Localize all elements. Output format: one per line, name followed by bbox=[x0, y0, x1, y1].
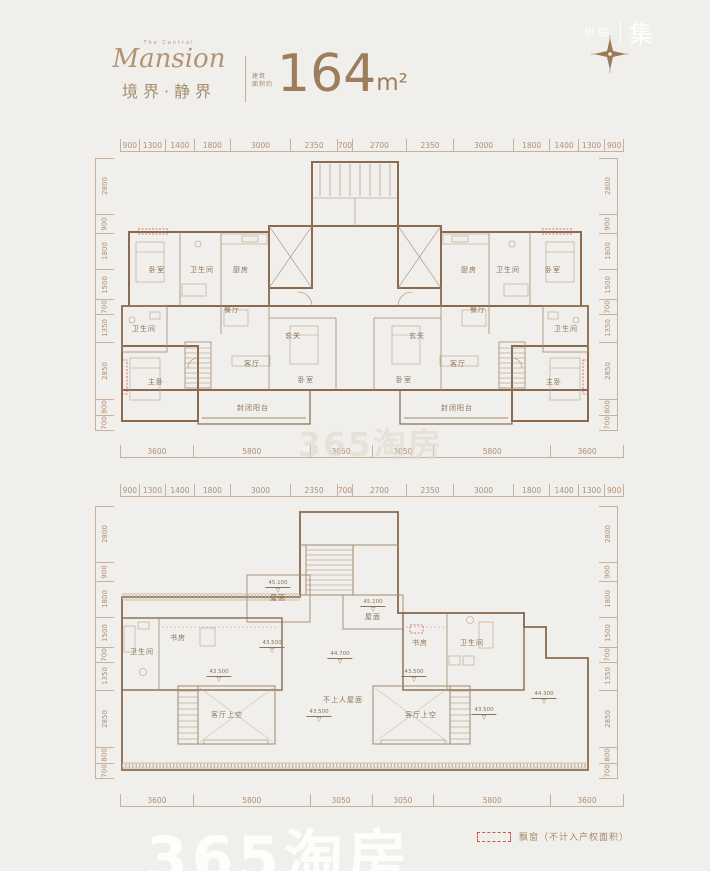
core-and-roofs bbox=[247, 545, 403, 629]
dim-segment: 5800 bbox=[434, 445, 551, 457]
upper-plan-top-dimensions: 9001300140018003000235070027002350300018… bbox=[120, 139, 624, 152]
lower-plan-left-dimensions: 28009001800150070013502850800700 bbox=[95, 506, 114, 779]
dim-segment: 900 bbox=[120, 484, 140, 496]
void-stair-icon bbox=[178, 691, 470, 739]
dim-segment: 700 bbox=[96, 763, 114, 778]
lower-plan-top-dimensions: 9001300140018003000235070027002350300018… bbox=[120, 484, 624, 497]
dim-segment: 2350 bbox=[291, 139, 338, 151]
dim-segment: 3600 bbox=[120, 445, 194, 457]
dim-segment: 1800 bbox=[96, 233, 114, 269]
dim-segment: 2850 bbox=[96, 342, 114, 399]
door-arcs bbox=[188, 292, 522, 368]
dim-segment: 3600 bbox=[551, 445, 624, 457]
dim-segment: 1500 bbox=[96, 269, 114, 299]
dashed-swatch-icon bbox=[477, 832, 511, 842]
dim-segment: 5800 bbox=[194, 445, 311, 457]
wing-partitions bbox=[159, 613, 447, 690]
dim-segment: 1800 bbox=[514, 139, 550, 151]
dim-segment: 800 bbox=[96, 747, 114, 764]
dim-segment: 900 bbox=[96, 214, 114, 233]
brand-right: 集 bbox=[629, 14, 653, 49]
dim-segment: 900 bbox=[96, 562, 114, 581]
area-unit: m² bbox=[376, 68, 408, 98]
partitions bbox=[122, 232, 588, 390]
outline-walls bbox=[122, 512, 588, 770]
dim-segment: 700 bbox=[338, 484, 353, 496]
dim-segment: 1350 bbox=[96, 662, 114, 690]
upper-plan-bottom-dimensions: 360058003050305058003600 bbox=[120, 445, 624, 458]
dim-segment: 3600 bbox=[120, 794, 194, 806]
bay-window-marks bbox=[410, 625, 423, 633]
elevator-icon bbox=[269, 226, 441, 288]
dim-segment: 1400 bbox=[550, 484, 579, 496]
legend-label: 飘窗（不计入产权面积） bbox=[519, 830, 629, 843]
lower-floor-plan: 屋面屋面卫生间书房书房卫生间客厅上空客厅上空不上人屋面 45.100▽45.10… bbox=[120, 506, 624, 782]
dim-segment: 3000 bbox=[454, 484, 514, 496]
enclosed-balconies bbox=[198, 390, 512, 424]
stair-icon bbox=[185, 164, 525, 383]
dim-segment: 2700 bbox=[353, 484, 407, 496]
dim-segment: 2350 bbox=[407, 484, 454, 496]
dim-segment: 800 bbox=[96, 399, 114, 416]
dim-segment: 1400 bbox=[166, 139, 195, 151]
dim-segment: 2800 bbox=[96, 158, 114, 214]
bay-window-legend: 飘窗（不计入产权面积） bbox=[477, 830, 629, 843]
logo-script-name: Mansion bbox=[93, 46, 245, 73]
upper-plan-left-dimensions: 28009001800150070013502850800700 bbox=[95, 158, 114, 431]
wing-walls bbox=[122, 613, 524, 690]
dim-segment: 1800 bbox=[195, 139, 231, 151]
dim-segment: 1350 bbox=[96, 314, 114, 342]
dim-segment: 900 bbox=[120, 139, 140, 151]
logo-chinese-name: 境界·静界 bbox=[93, 78, 245, 102]
dim-segment: 3050 bbox=[373, 445, 435, 457]
area-value: 164 bbox=[277, 50, 376, 98]
dim-segment: 3000 bbox=[231, 139, 291, 151]
dim-segment: 1400 bbox=[550, 139, 579, 151]
dim-segment: 3000 bbox=[231, 484, 291, 496]
dim-segment: 3050 bbox=[311, 794, 373, 806]
dim-segment: 1300 bbox=[140, 484, 167, 496]
lower-floor-plan-drawing bbox=[120, 506, 624, 782]
dim-segment: 2350 bbox=[407, 139, 454, 151]
area-prefix-line1: 建筑 bbox=[252, 73, 273, 81]
dim-segment: 2350 bbox=[291, 484, 338, 496]
dim-segment: 1500 bbox=[96, 617, 114, 647]
dim-segment: 1300 bbox=[140, 139, 167, 151]
void-diagonals bbox=[200, 688, 448, 742]
dim-segment: 700 bbox=[338, 139, 353, 151]
compass-rose-icon bbox=[590, 34, 630, 74]
dim-segment: 1800 bbox=[195, 484, 231, 496]
dim-segment: 2800 bbox=[96, 506, 114, 562]
dim-segment: 900 bbox=[605, 139, 624, 151]
dim-segment: 1300 bbox=[579, 139, 606, 151]
stair-icon bbox=[306, 550, 353, 590]
floorplan-sheet: The Central Mansion 境界·静界 建筑 面积约 164 m² … bbox=[0, 0, 710, 871]
area-figure: 建筑 面积约 164 m² bbox=[252, 50, 408, 98]
header-divider bbox=[245, 56, 246, 102]
dim-segment: 3050 bbox=[373, 794, 435, 806]
dim-segment: 1400 bbox=[166, 484, 195, 496]
dim-segment: 5800 bbox=[194, 794, 311, 806]
dim-segment: 5800 bbox=[434, 794, 551, 806]
dim-segment: 3050 bbox=[311, 445, 373, 457]
fixtures bbox=[124, 617, 493, 676]
upper-floor-plan-drawing bbox=[120, 158, 624, 430]
bay-window-marks bbox=[122, 229, 588, 394]
bottom-watermark: 365淘房 bbox=[146, 810, 411, 871]
project-logo: The Central Mansion 境界·静界 bbox=[93, 40, 245, 102]
dim-segment: 2850 bbox=[96, 690, 114, 747]
dim-segment: 3600 bbox=[551, 794, 624, 806]
dim-segment: 700 bbox=[96, 299, 114, 314]
upper-floor-plan: 卧室卫生间厨房餐厅玄关卫生间主卧客厅卧室封闭阳台厨房卫生间卧室餐厅玄关卫生间客厅… bbox=[120, 158, 624, 430]
dim-segment: 700 bbox=[96, 415, 114, 430]
lower-plan-bottom-dimensions: 360058003050305058003600 bbox=[120, 794, 624, 807]
dim-segment: 3000 bbox=[454, 139, 514, 151]
dim-segment: 1800 bbox=[96, 581, 114, 617]
dim-segment: 1300 bbox=[579, 484, 606, 496]
area-prefix-line2: 面积约 bbox=[252, 81, 273, 89]
parapet-hatch bbox=[122, 763, 588, 768]
dim-segment: 900 bbox=[605, 484, 624, 496]
area-prefix: 建筑 面积约 bbox=[252, 73, 273, 89]
double-height-voids bbox=[178, 686, 470, 744]
dim-segment: 700 bbox=[96, 647, 114, 662]
dim-segment: 1800 bbox=[514, 484, 550, 496]
dim-segment: 2700 bbox=[353, 139, 407, 151]
